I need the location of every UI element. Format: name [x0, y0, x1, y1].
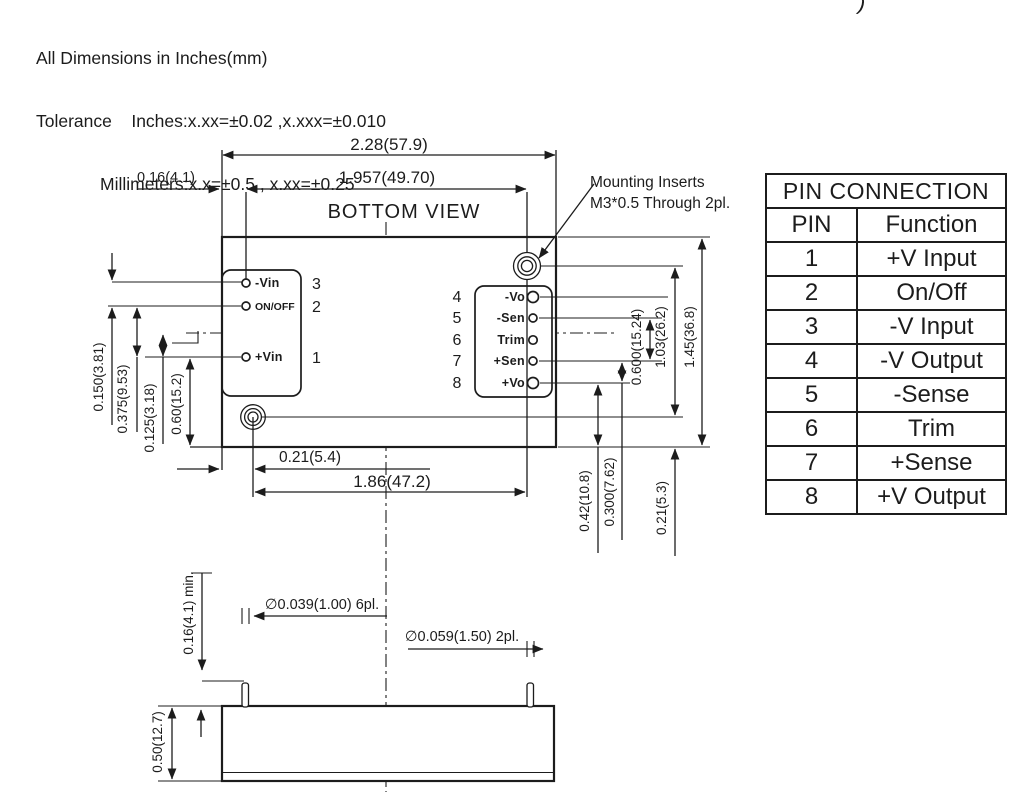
dim-edge-offset: 0.16(4.1)	[137, 170, 195, 186]
dim-pin-diameter: ∅0.039(1.00) 6pl.	[265, 597, 379, 613]
pin-function-cell: -V Input	[857, 310, 1006, 344]
pin-8-circle	[528, 378, 539, 389]
dim-left-1: 0.150(3.81)	[91, 342, 106, 411]
pin-3-label: -Vin	[255, 276, 280, 290]
dim-right-2: 1.03(26.2)	[653, 306, 668, 368]
pin-table-title: PIN CONNECTION	[766, 174, 1006, 208]
dim-left-2: 0.375(9.53)	[115, 364, 130, 433]
pin-number-cell: 2	[766, 276, 857, 310]
pin-table-col-pin: PIN	[766, 208, 857, 242]
pin-number-cell: 6	[766, 412, 857, 446]
pin-function-cell: +V Output	[857, 480, 1006, 514]
dim-insert-diameter: ∅0.059(1.50) 2pl.	[405, 629, 519, 645]
pin-5-number: 5	[453, 310, 462, 327]
dim-pin-span-width: 1.957(49.70)	[339, 168, 435, 187]
pin-function-cell: -V Output	[857, 344, 1006, 378]
pin-6-circle	[529, 336, 537, 344]
pin-number-cell: 1	[766, 242, 857, 276]
pin-3-circle	[242, 279, 250, 287]
pin-2-circle	[242, 302, 250, 310]
side-view: 0.16(4.1) min. ∅0.039(1.00) 6pl. ∅0.059(…	[150, 571, 554, 781]
pin-7-number: 7	[453, 353, 462, 370]
table-row: 6 Trim	[766, 412, 1006, 446]
mounting-note-leader	[539, 184, 594, 258]
dim-overall-width: 2.28(57.9)	[350, 135, 428, 154]
pin-1-number: 1	[312, 350, 321, 367]
datasheet-mechanical-page: All Dimensions in Inches(mm) Tolerance I…	[0, 0, 1024, 804]
mounting-note-line1: Mounting Inserts	[590, 174, 705, 191]
table-row: 2 On/Off	[766, 276, 1006, 310]
pin-function-cell: +V Input	[857, 242, 1006, 276]
pin-function-cell: Trim	[857, 412, 1006, 446]
mounting-hole-top	[514, 253, 541, 280]
side-view-pin-right	[527, 683, 534, 707]
table-row: 3 -V Input	[766, 310, 1006, 344]
pin-number-cell: 7	[766, 446, 857, 480]
side-view-pin-left	[242, 683, 249, 707]
pin-3-number: 3	[312, 276, 321, 293]
pin-4-label: -Vo	[505, 290, 525, 304]
pin-function-cell: -Sense	[857, 378, 1006, 412]
pin-number-cell: 4	[766, 344, 857, 378]
dim-bottom-1: 0.21(5.4)	[279, 449, 341, 466]
pin-1-label: +Vin	[255, 350, 283, 364]
pin-7-circle	[529, 357, 537, 365]
pin-5-label: -Sen	[497, 311, 525, 325]
pin-table-col-function: Function	[857, 208, 1006, 242]
pin-function-cell: On/Off	[857, 276, 1006, 310]
view-title: BOTTOM VIEW	[328, 201, 481, 223]
pin-4-number: 4	[453, 289, 462, 306]
dim-bottom-right-3: 0.21(5.3)	[654, 481, 669, 535]
pin-8-label: +Vo	[502, 376, 525, 390]
pin-number-cell: 8	[766, 480, 857, 514]
dim-right-1: 0.600(15.24)	[629, 309, 644, 386]
table-row: 8 +V Output	[766, 480, 1006, 514]
table-row: 1 +V Input	[766, 242, 1006, 276]
mounting-note-line2: M3*0.5 Through 2pl.	[590, 195, 730, 212]
pin-7-label: +Sen	[494, 354, 525, 368]
table-row: 7 +Sense	[766, 446, 1006, 480]
pin-4-circle	[528, 292, 539, 303]
table-row: 4 -V Output	[766, 344, 1006, 378]
bottom-view: 2.28(57.9) 1.957(49.70) 0.16(4.1) BOTTOM…	[91, 135, 730, 792]
pin-connection-table: PIN CONNECTION PIN Function 1 +V Input 2…	[765, 173, 1007, 515]
pin-1-circle	[242, 353, 250, 361]
table-row: 5 -Sense	[766, 378, 1006, 412]
dim-left-3: 0.125(3.18)	[142, 383, 157, 452]
pin-8-number: 8	[453, 375, 462, 392]
dim-left-4: 0.60(15.2)	[169, 373, 184, 435]
pin-function-cell: +Sense	[857, 446, 1006, 480]
dim-standoff: 0.16(4.1) min.	[181, 571, 196, 654]
dim-bottom-right-2: 0.300(7.62)	[602, 457, 617, 526]
pin-2-number: 2	[312, 299, 321, 316]
dim-module-height: 0.50(12.7)	[150, 711, 165, 773]
pin-5-circle	[529, 314, 537, 322]
dim-bottom-right-1: 0.42(10.8)	[577, 470, 592, 532]
dim-bottom-2: 1.86(47.2)	[353, 472, 431, 491]
pin-6-number: 6	[453, 332, 462, 349]
side-view-body-outline	[222, 706, 554, 781]
pin-number-cell: 5	[766, 378, 857, 412]
pin-number-cell: 3	[766, 310, 857, 344]
pin-2-label: ON/OFF	[255, 301, 295, 313]
pin-6-label: Trim	[497, 333, 525, 347]
dim-right-3: 1.45(36.8)	[682, 306, 697, 368]
